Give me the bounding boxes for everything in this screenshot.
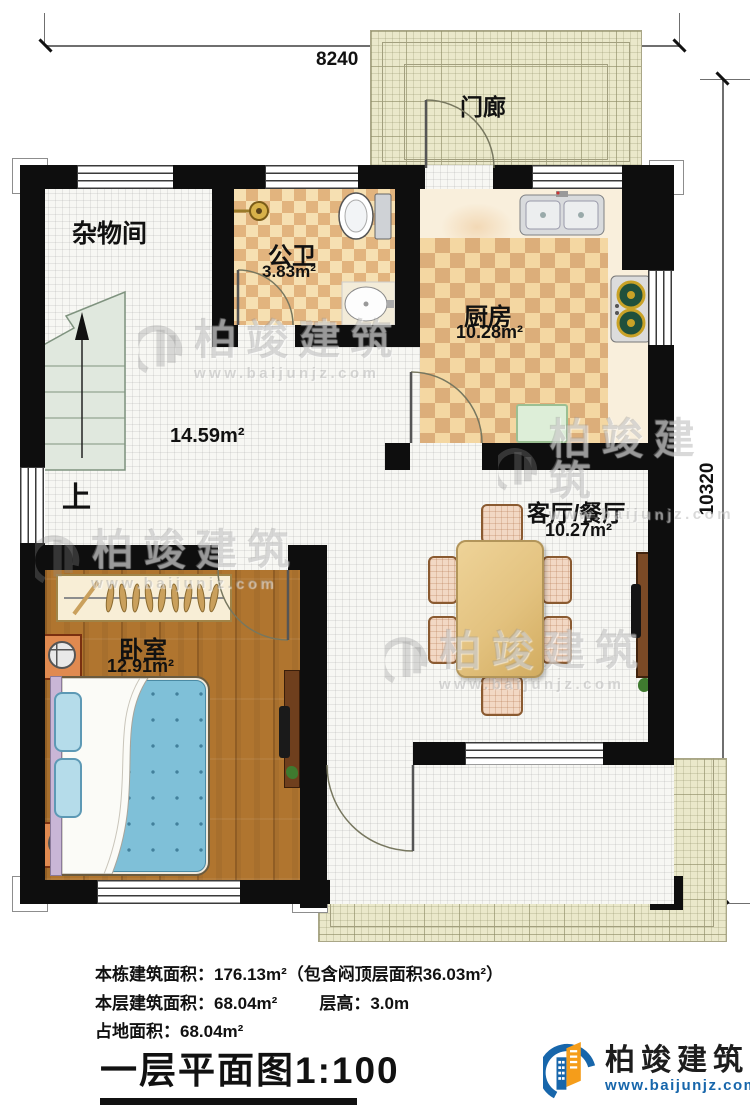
- bathroom-door-arc: [238, 270, 293, 325]
- plan-title-underline: [100, 1098, 357, 1105]
- footer-line1: 本栋建筑面积：176.13m²（包含闷顶层面积36.03m²）: [95, 960, 503, 985]
- floor-plan: 8240 10320 门廊 门廊 公卫 3.83m²: [0, 0, 750, 1113]
- kitchen-door-arc: [411, 372, 482, 443]
- brand-name: 柏竣建筑: [605, 1044, 750, 1077]
- brand-logo-icon: [543, 1036, 597, 1102]
- plan-title: 一层平面图1:100: [100, 1040, 400, 1094]
- door-arcs: [0, 0, 750, 1113]
- footer-line2: 本层建筑面积：68.04m²层高：3.0m: [95, 989, 409, 1014]
- brand-logo: 柏竣建筑 www.baijunjz.com: [543, 1036, 750, 1102]
- porch-door-arc: [327, 765, 413, 851]
- footer-line2-right: 层高：3.0m: [319, 994, 409, 1013]
- footer-line2-left: 本层建筑面积：68.04m²: [95, 994, 277, 1013]
- footer-line3: 占地面积：68.04m²: [95, 1017, 243, 1042]
- bedroom-door-arc: [218, 570, 288, 640]
- brand-url: www.baijunjz.com: [605, 1077, 750, 1094]
- entry-door-arc: [426, 100, 494, 168]
